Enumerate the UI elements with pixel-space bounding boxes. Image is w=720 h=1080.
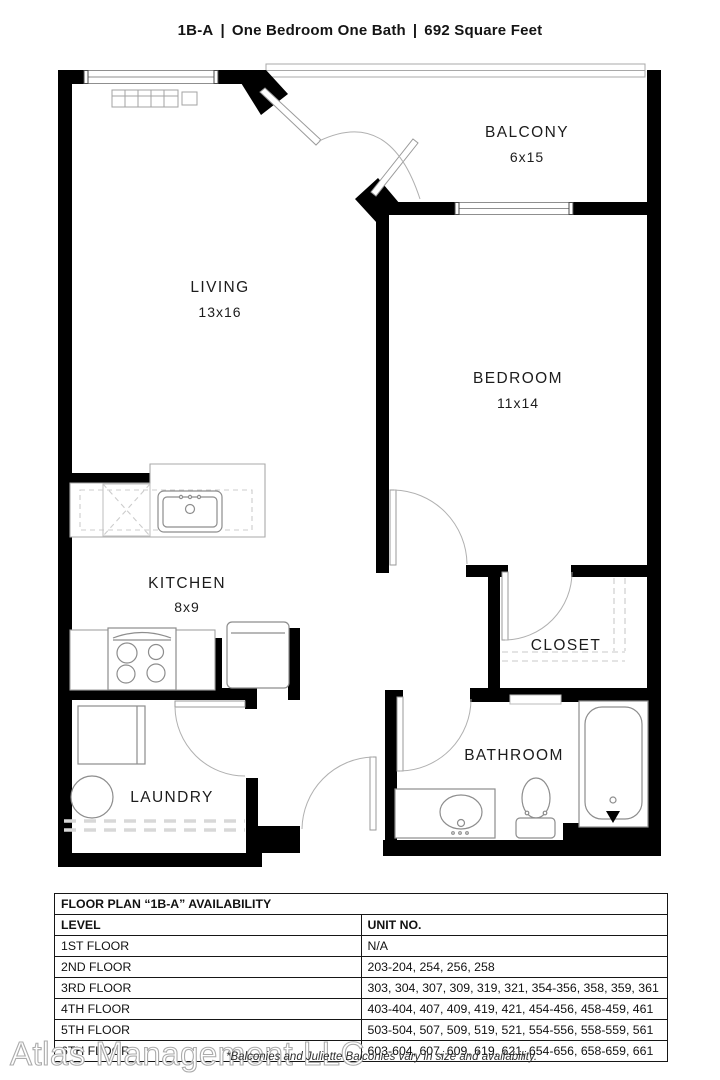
bathroom-door xyxy=(397,697,471,771)
balcony-dims: 6x15 xyxy=(510,149,544,165)
closet-label: CLOSET xyxy=(531,637,601,654)
kitchen-label: KITCHEN xyxy=(148,575,226,592)
entry-door xyxy=(302,757,376,830)
kitchen-sink xyxy=(158,491,222,532)
bathroom-vanity xyxy=(395,789,495,838)
walls xyxy=(58,70,661,867)
refrigerator xyxy=(227,622,289,688)
bathroom-label: BATHROOM xyxy=(464,747,564,764)
level-cell: 3RD FLOOR xyxy=(55,978,362,999)
balcony-door-leaf-right xyxy=(371,139,418,196)
units-cell: 303, 304, 307, 309, 319, 321, 354-356, 3… xyxy=(361,978,668,999)
kitchen-dims: 8x9 xyxy=(174,599,200,615)
table-row: 4TH FLOOR 403-404, 407, 409, 419, 421, 4… xyxy=(55,999,668,1020)
balcony-label: BALCONY xyxy=(485,124,569,141)
water-heater xyxy=(71,776,113,818)
washer-dryer xyxy=(78,706,145,764)
laundry-door xyxy=(175,701,245,776)
bedroom-door xyxy=(390,490,467,565)
table-row: 2ND FLOOR 203-204, 254, 256, 258 xyxy=(55,957,668,978)
baseboard-heater xyxy=(112,90,197,107)
col-header-unit-no: UNIT NO. xyxy=(361,915,668,936)
floor-plan-page: 1B-A|One Bedroom One Bath|692 Square Fee… xyxy=(0,0,720,1080)
balcony-railing xyxy=(266,64,645,77)
table-row: 3RD FLOOR 303, 304, 307, 309, 319, 321, … xyxy=(55,978,668,999)
availability-title: FLOOR PLAN “1B-A” AVAILABILITY xyxy=(55,894,668,915)
units-cell: 403-404, 407, 409, 419, 421, 454-456, 45… xyxy=(361,999,668,1020)
laundry-threshold-dashes xyxy=(64,821,245,830)
units-cell: N/A xyxy=(361,936,668,957)
units-cell: 203-204, 254, 256, 258 xyxy=(361,957,668,978)
bathtub xyxy=(579,701,648,827)
balcony-door xyxy=(260,88,420,199)
col-header-level: LEVEL xyxy=(55,915,362,936)
availability-title-row: FLOOR PLAN “1B-A” AVAILABILITY xyxy=(55,894,668,915)
balcony-disclaimer-note: *Balconies and Juliette Balconies vary i… xyxy=(226,1051,537,1063)
living-dims: 13x16 xyxy=(198,304,241,320)
availability-header-row: LEVEL UNIT NO. xyxy=(55,915,668,936)
balcony-door-leaf-left xyxy=(260,88,321,145)
floor-plan-drawing: BALCONY 6x15 LIVING 13x16 BEDROOM 11x14 … xyxy=(0,0,720,880)
bathroom-wall-niche xyxy=(510,695,561,704)
closet-door xyxy=(502,572,572,640)
level-cell: 4TH FLOOR xyxy=(55,999,362,1020)
units-cell: 503-504, 507, 509, 519, 521, 554-556, 55… xyxy=(361,1020,668,1041)
stove xyxy=(108,628,176,690)
living-window xyxy=(84,71,218,84)
level-cell: 1ST FLOOR xyxy=(55,936,362,957)
bedroom-window xyxy=(455,203,573,215)
toilet xyxy=(516,778,555,838)
living-label: LIVING xyxy=(190,279,249,296)
table-row: 1ST FLOOR N/A xyxy=(55,936,668,957)
level-cell: 2ND FLOOR xyxy=(55,957,362,978)
bedroom-dims: 11x14 xyxy=(497,395,539,411)
bedroom-label: BEDROOM xyxy=(473,370,563,387)
laundry-label: LAUNDRY xyxy=(130,789,214,806)
